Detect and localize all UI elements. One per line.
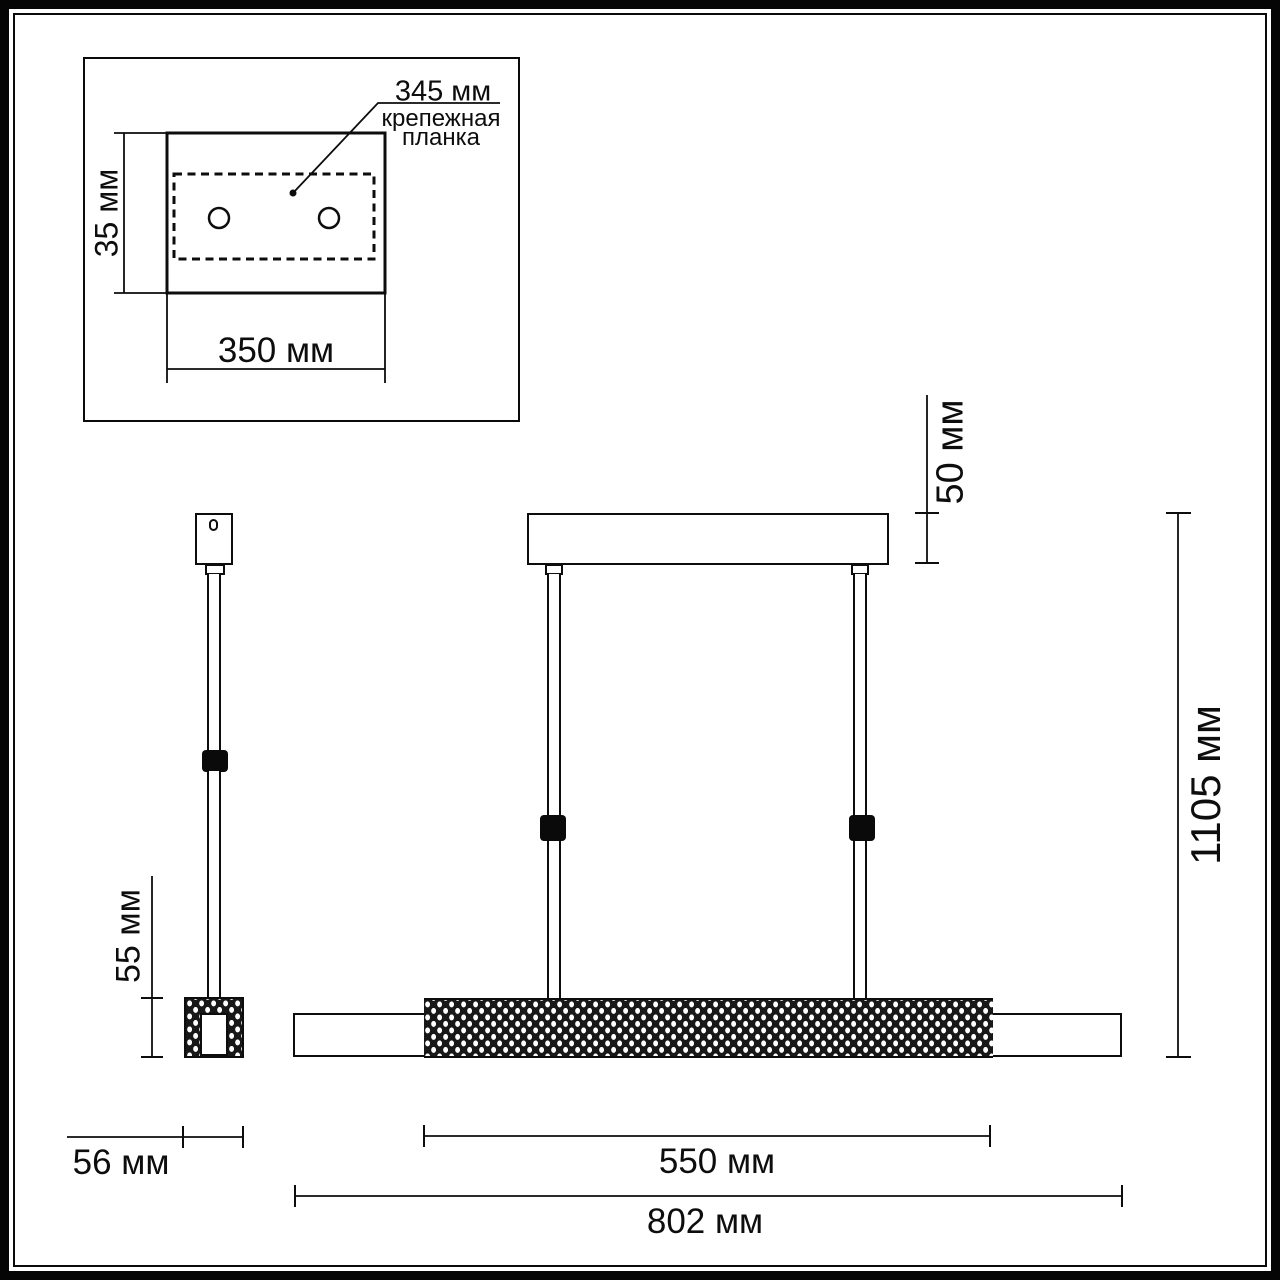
side-bar-profile-channel (200, 1013, 228, 1056)
bar-width-dim-label: 56 мм (73, 1143, 170, 1183)
front-canopy (527, 513, 889, 565)
canopy-height-dim-label: 50 мм (930, 399, 973, 504)
side-rod-upper (207, 574, 221, 751)
side-height-adjuster-block (202, 750, 228, 772)
side-rod-lower (207, 771, 221, 998)
front-bar-left-end-cap (293, 1013, 426, 1057)
overall-height-dim-label: 1105 мм (1182, 705, 1230, 865)
front-right-rod (853, 574, 867, 998)
front-bar-right-end-cap (991, 1013, 1122, 1057)
front-crystal-diffuser-bar (424, 998, 993, 1058)
diffuser-length-dim-label: 550 мм (659, 1142, 775, 1182)
mounting-strap-label: крепежная планка (382, 109, 501, 147)
plate-depth-dim-label: 35 мм (89, 169, 126, 257)
overall-length-dim-label: 802 мм (647, 1202, 763, 1242)
front-left-adjuster-block (540, 815, 566, 841)
drawing-page: 345 мм крепежная планка 35 мм 350 мм 55 … (0, 0, 1280, 1280)
bar-height-dim-label: 55 мм (110, 889, 149, 983)
plate-length-dim-label: 350 мм (218, 331, 334, 371)
side-canopy-hole (209, 519, 218, 531)
hole-spacing-dim-label: 345 мм (395, 76, 491, 109)
front-right-adjuster-block (849, 815, 875, 841)
front-left-rod (547, 574, 561, 998)
